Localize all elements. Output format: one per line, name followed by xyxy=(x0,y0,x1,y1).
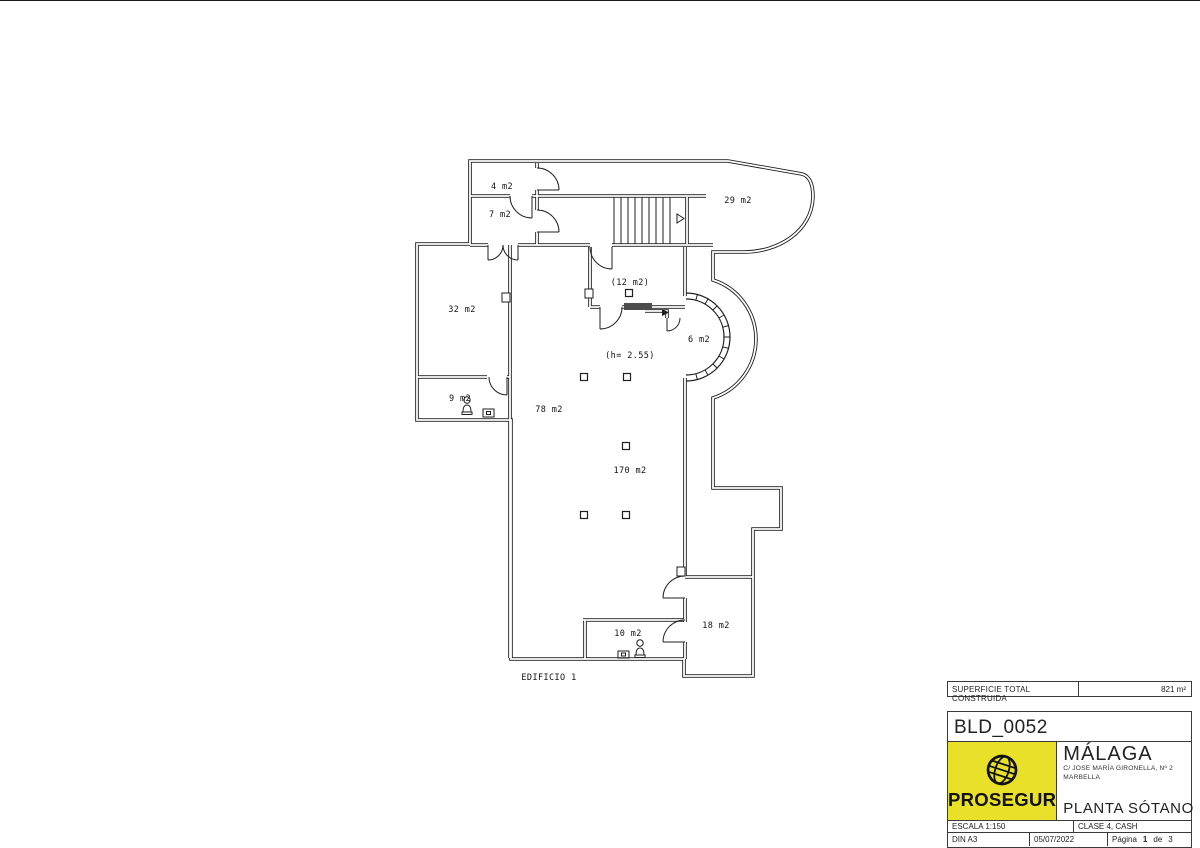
room-label-10m2: 10 m2 xyxy=(614,629,642,639)
brand-name: PROSEGUR xyxy=(948,789,1056,811)
prosegur-logo: PROSEGUR xyxy=(948,742,1057,820)
stair-treads xyxy=(614,197,670,244)
building-label: EDIFICIO 1 xyxy=(521,673,576,683)
columns xyxy=(581,290,633,519)
door-10m2-18m2 xyxy=(663,620,685,642)
sliding-door-bar xyxy=(624,303,652,310)
page-number: 1 xyxy=(1143,835,1147,846)
room-label-78m2: 78 m2 xyxy=(535,405,563,415)
drawing-sheet: 4 m2 7 m2 29 m2 32 m2 (12 m2) 6 m2 (h= 2… xyxy=(0,0,1200,848)
paper-size: DIN A3 xyxy=(948,833,1030,846)
doors xyxy=(488,168,685,642)
door-hall-18m2 xyxy=(663,576,685,598)
door-12m2-top xyxy=(590,247,612,269)
page-label: Página xyxy=(1112,835,1137,846)
globe-icon xyxy=(984,752,1020,788)
double-door-32m2 xyxy=(488,245,518,260)
building-code: BLD_0052 xyxy=(948,712,1191,742)
site-address-line1: C/ JOSE MARÍA GIRONELLA, Nº 2 xyxy=(1063,765,1194,774)
site-address-line2: MARBELLA xyxy=(1063,774,1194,783)
total-area-value: 821 m² xyxy=(1079,682,1191,696)
page-of: de xyxy=(1153,835,1162,846)
title-block: BLD_0052 PROSEGUR MÁLAGA C/ JOSE MARÍA G… xyxy=(947,711,1192,848)
door-12m2-bottom xyxy=(600,307,622,329)
room-label-170m2: 170 m2 xyxy=(613,466,646,476)
staircase xyxy=(614,197,684,244)
room-label-29m2: 29 m2 xyxy=(724,196,752,206)
desk-icon xyxy=(618,651,629,658)
person-icon xyxy=(635,640,645,658)
door-9m2 xyxy=(489,377,507,395)
site-city: MÁLAGA xyxy=(1063,744,1194,765)
room-label-12m2: (12 m2) xyxy=(611,278,650,288)
page-indicator: Página 1 de 3 xyxy=(1108,833,1191,846)
total-area-bar: SUPERFICIE TOTAL CONSTRUIDA 821 m² xyxy=(947,681,1192,697)
door-4m2-corridor xyxy=(537,168,559,190)
room-label-7m2: 7 m2 xyxy=(489,210,511,220)
classification-value: CLASE 4, CASH xyxy=(1074,821,1191,832)
stairs-direction-arrow-icon xyxy=(677,214,684,223)
door-7m2-landing xyxy=(537,210,559,232)
room-label-18m2: 18 m2 xyxy=(702,621,730,631)
door-6m2 xyxy=(667,318,680,331)
scale-value: ESCALA 1:150 xyxy=(948,821,1074,832)
room-label-4m2: 4 m2 xyxy=(491,182,513,192)
room-label-6m2: 6 m2 xyxy=(688,335,710,345)
desk-icon xyxy=(483,409,494,417)
door-4m2-7m2 xyxy=(510,196,532,218)
wall-fixtures xyxy=(502,289,685,576)
room-label-9m2: 9 m2 xyxy=(449,394,471,404)
total-area-label: SUPERFICIE TOTAL CONSTRUIDA xyxy=(948,682,1079,696)
ceiling-height-note: (h= 2.55) xyxy=(605,351,655,361)
page-total: 3 xyxy=(1168,835,1172,846)
drawing-date: 05/07/2022 xyxy=(1030,833,1108,846)
drawing-title: PLANTA SÓTANO xyxy=(1063,800,1194,817)
room-label-32m2: 32 m2 xyxy=(448,305,476,315)
